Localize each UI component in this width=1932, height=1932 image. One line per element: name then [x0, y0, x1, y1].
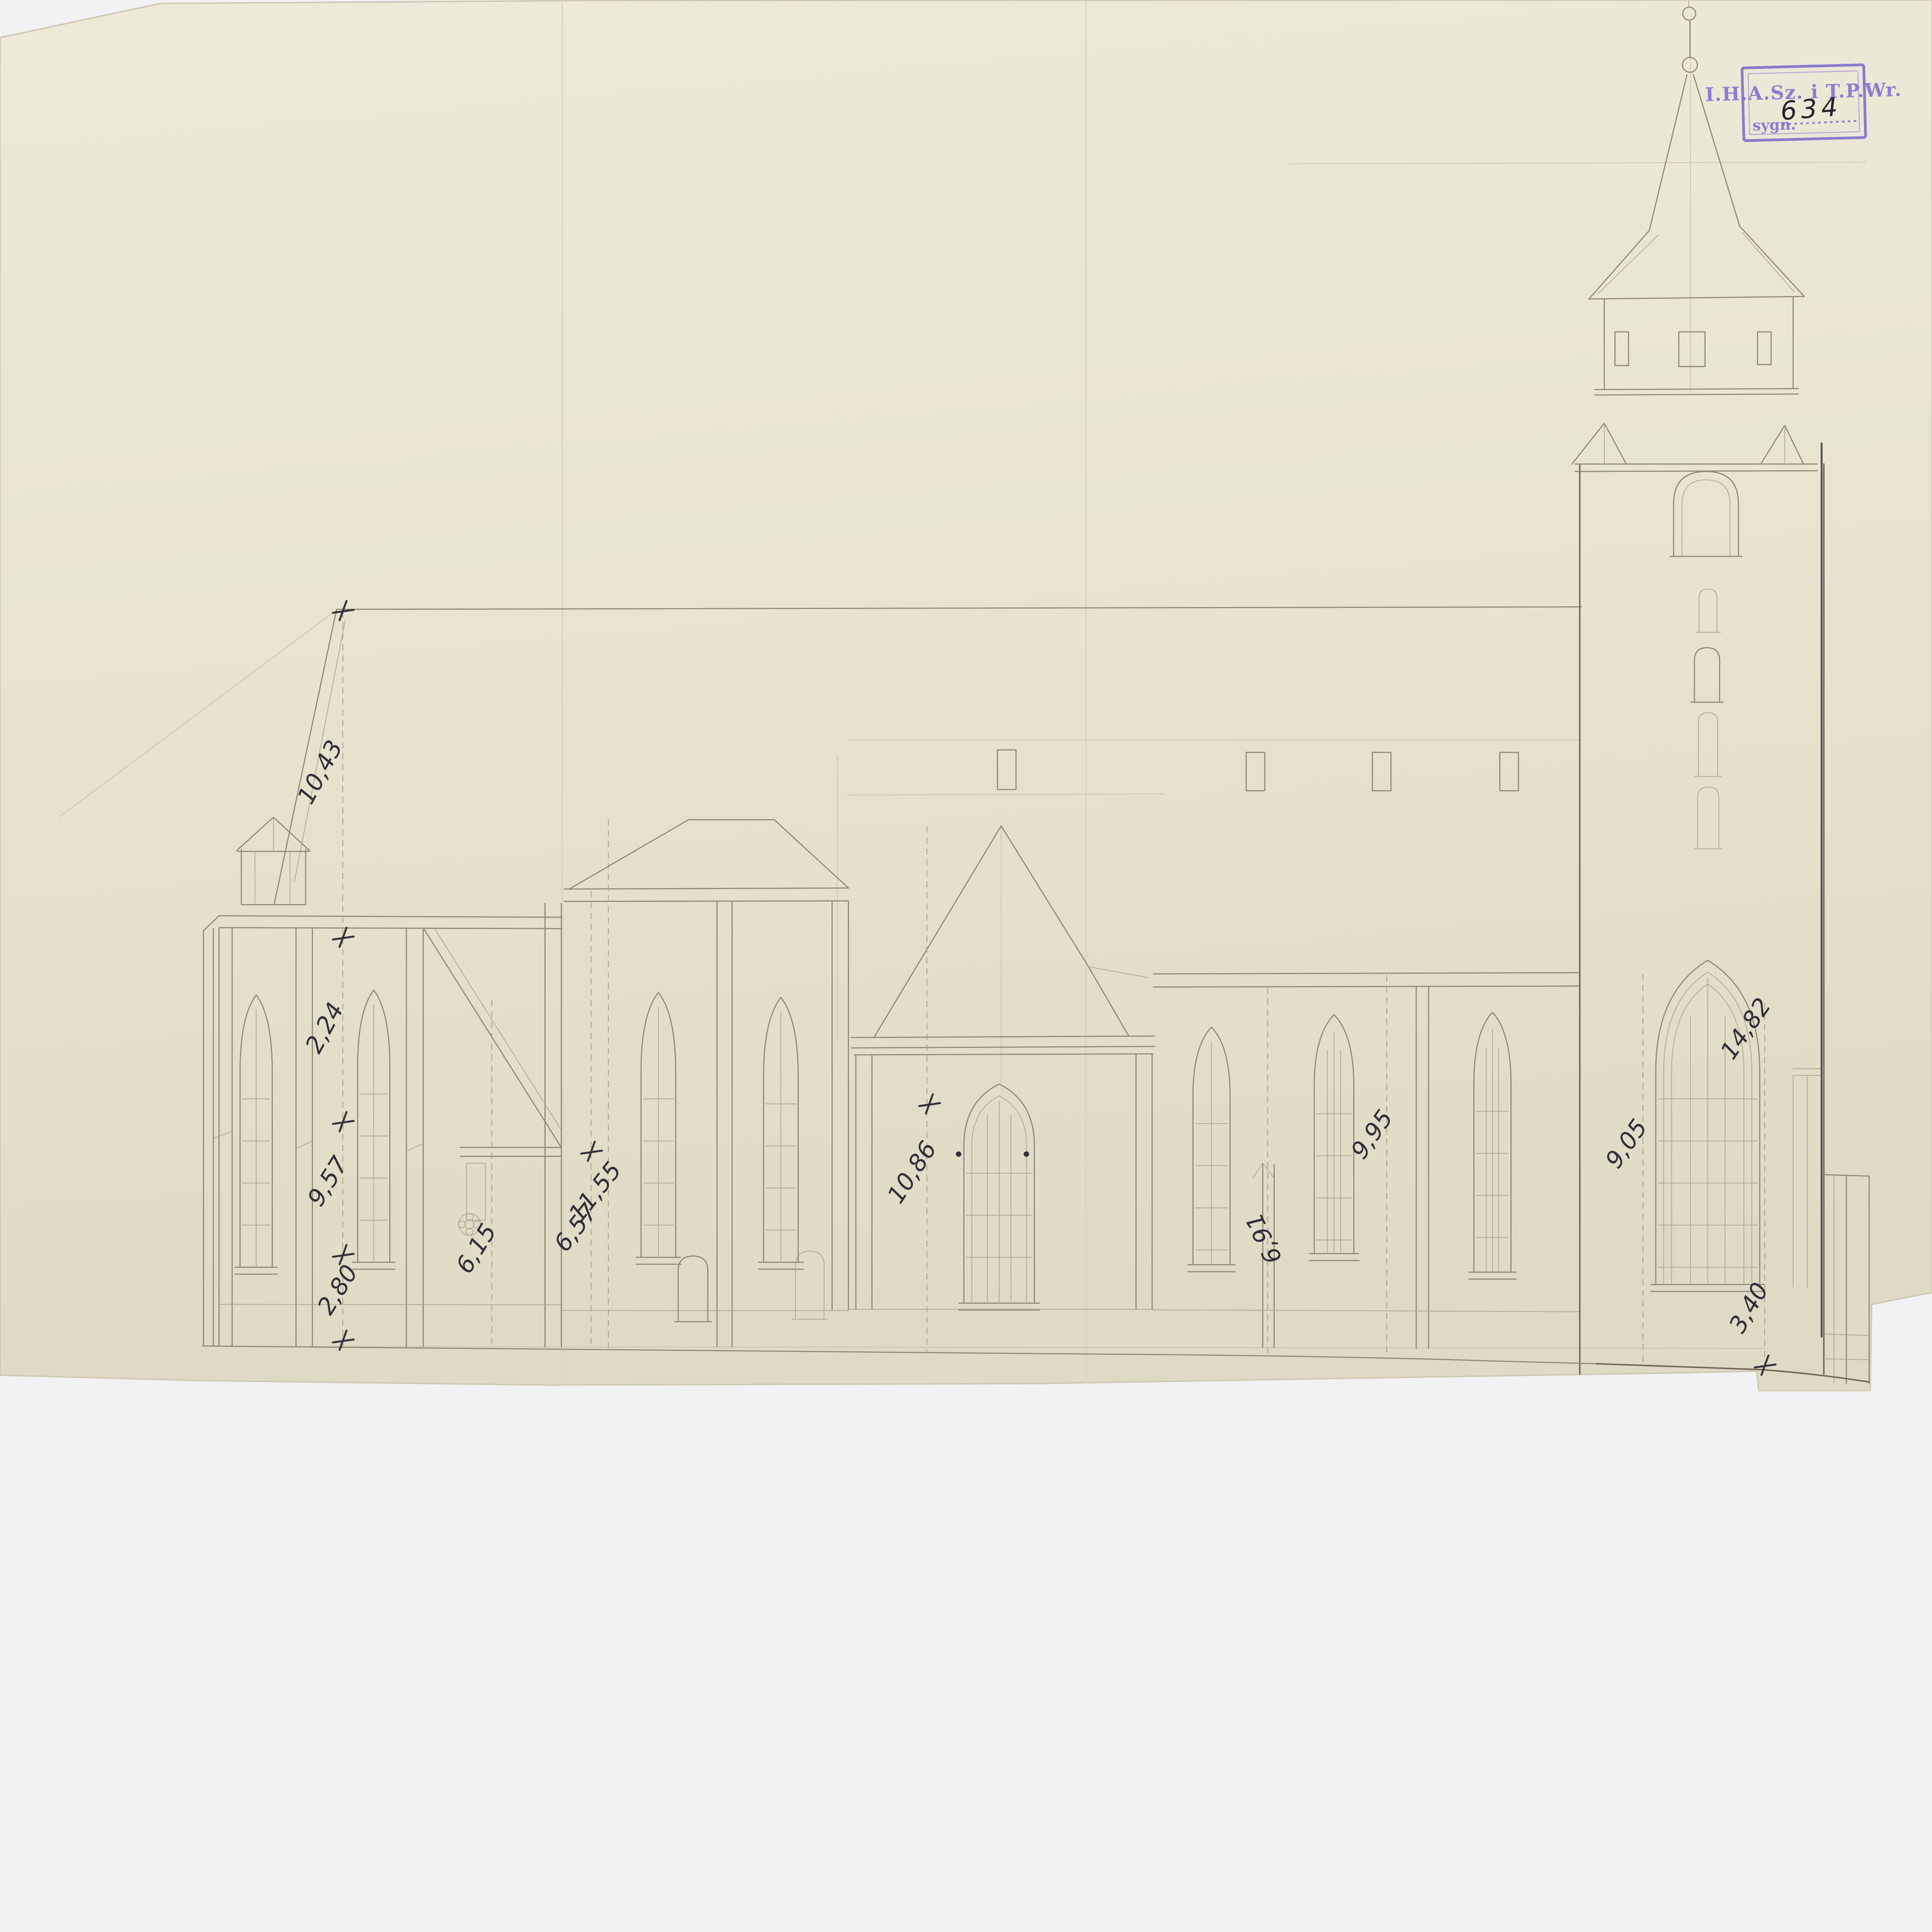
scanned-sheet-stage: 10,432,249,572,806,156,5711,5510,866,919…: [0, 0, 1932, 1391]
church-elevation-scan: 10,432,249,572,806,156,5711,5510,866,919…: [0, 0, 1932, 1391]
paper-sheet: [0, 0, 1932, 1391]
stamp-signature-number: 634: [1779, 91, 1843, 126]
